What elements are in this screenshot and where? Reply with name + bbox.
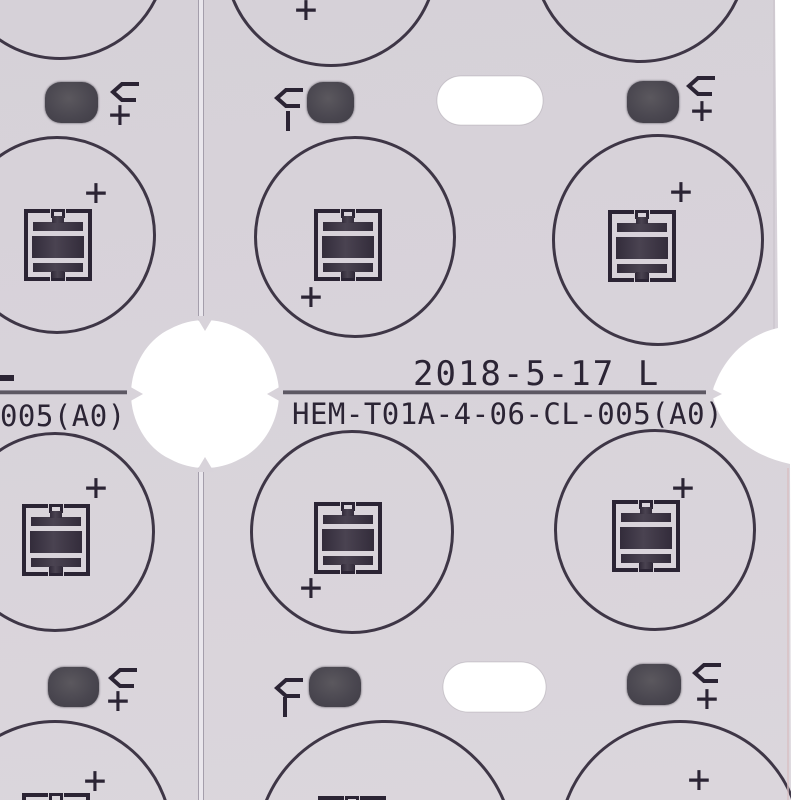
footprint-nub-bottom: [640, 562, 652, 569]
led-footprint: [22, 504, 90, 576]
solder-pad: [45, 82, 98, 123]
v-score-vertical-seam: [198, 0, 204, 800]
footprint-bracket-left: [22, 793, 48, 800]
footprint-nub-top: [50, 511, 62, 518]
led-module-circle: [255, 720, 515, 800]
led-footprint: [612, 500, 680, 572]
polarity-arrow-icon: [108, 666, 138, 690]
board-right-edge-shadow: [773, 0, 775, 330]
oval-slot-bottom: [443, 662, 546, 712]
polarity-arrow-icon: [686, 74, 716, 98]
part-number-text: HEM-T01A-4-06-CL-005(A0): [292, 397, 723, 431]
footprint-bracket-left: [318, 796, 344, 800]
footprint-pad-top: [617, 223, 667, 232]
footprint-nub-bottom: [342, 564, 354, 571]
solder-pad: [307, 82, 354, 123]
solder-pad: [309, 667, 361, 707]
footprint-nub-top: [636, 217, 648, 224]
solder-pad: [627, 664, 681, 705]
plus-polarity-mark: +: [688, 760, 711, 798]
part-number-fragment-left: -005(A0): [0, 399, 126, 433]
silkscreen-fragment-dash: [0, 375, 14, 381]
footprint-pad-top: [621, 513, 671, 522]
plus-polarity-mark: +: [85, 173, 108, 211]
led-module-circle: [224, 0, 438, 67]
footprint-nub-bottom: [342, 271, 354, 278]
footprint-nub-top: [342, 509, 354, 516]
footprint-pad-middle: [32, 236, 84, 258]
led-footprint: [318, 796, 386, 800]
led-footprint: [22, 793, 90, 800]
footprint-pad-top: [323, 515, 373, 524]
board-right-edge-line: [787, 468, 789, 800]
date-code-text: 2018-5-17 L: [413, 354, 660, 394]
led-module-circle: [532, 0, 748, 63]
footprint-pad-top: [31, 517, 81, 526]
plus-polarity-mark: +: [300, 277, 323, 315]
footprint-tab-top: [345, 796, 359, 800]
polarity-arrow-icon: [274, 676, 304, 700]
footprint-pad-middle: [30, 531, 82, 553]
footprint-nub-bottom: [52, 271, 64, 278]
footprint-nub-top: [640, 507, 652, 514]
minus-polarity-mark: [283, 697, 287, 717]
footprint-pad-middle: [620, 527, 672, 549]
polarity-arrow-icon: [110, 80, 140, 104]
footprint-nub-top: [342, 216, 354, 223]
solder-pad: [48, 667, 99, 707]
led-footprint: [24, 209, 92, 281]
led-footprint: [314, 209, 382, 281]
v-score-horizontal-seam: [0, 390, 714, 395]
footprint-pad-top: [323, 222, 373, 231]
footprint-bracket-right: [360, 796, 386, 800]
led-footprint: [314, 502, 382, 574]
plus-polarity-mark: +: [84, 761, 107, 799]
plus-polarity-mark: +: [85, 468, 108, 506]
pcb-panel-photo: 2018-5-17 L HEM-T01A-4-06-CL-005(A0) -00…: [0, 0, 800, 800]
led-module-circle: [558, 720, 800, 800]
footprint-pad-middle: [322, 236, 374, 258]
footprint-tab-top: [49, 793, 63, 800]
plus-polarity-mark: +: [300, 568, 323, 606]
polarity-arrow-icon: [692, 661, 722, 685]
led-module-circle: [0, 0, 168, 60]
polarity-arrow-icon: [274, 86, 304, 110]
footprint-nub-top: [52, 216, 64, 223]
footprint-nub-bottom: [636, 272, 648, 279]
plus-polarity-mark: +: [295, 0, 318, 28]
footprint-pad-top: [33, 222, 83, 231]
solder-pad: [627, 81, 679, 123]
led-footprint: [608, 210, 676, 282]
footprint-pad-middle: [616, 237, 668, 259]
plus-polarity-mark: +: [670, 172, 693, 210]
plus-polarity-mark: +: [672, 468, 695, 506]
minus-polarity-mark: [286, 111, 290, 131]
footprint-nub-bottom: [50, 566, 62, 573]
oval-slot-top: [437, 76, 543, 125]
footprint-pad-middle: [322, 529, 374, 551]
